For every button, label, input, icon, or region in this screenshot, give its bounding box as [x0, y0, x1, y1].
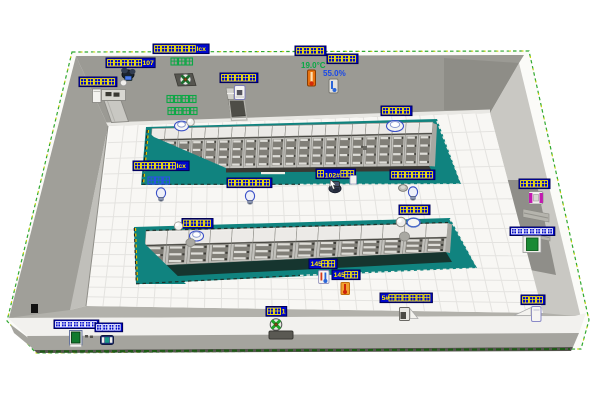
svg-text:lcx: lcx [177, 163, 187, 170]
svg-text:5#: 5# [382, 295, 390, 302]
svg-text:107: 107 [143, 60, 155, 67]
svg-text:102#: 102# [325, 172, 340, 179]
svg-text:145: 145 [311, 261, 323, 268]
svg-text:lcx: lcx [197, 46, 207, 53]
svg-text:1: 1 [282, 308, 286, 315]
svg-text:55.0%: 55.0% [323, 69, 346, 78]
svg-text:145: 145 [334, 272, 346, 279]
